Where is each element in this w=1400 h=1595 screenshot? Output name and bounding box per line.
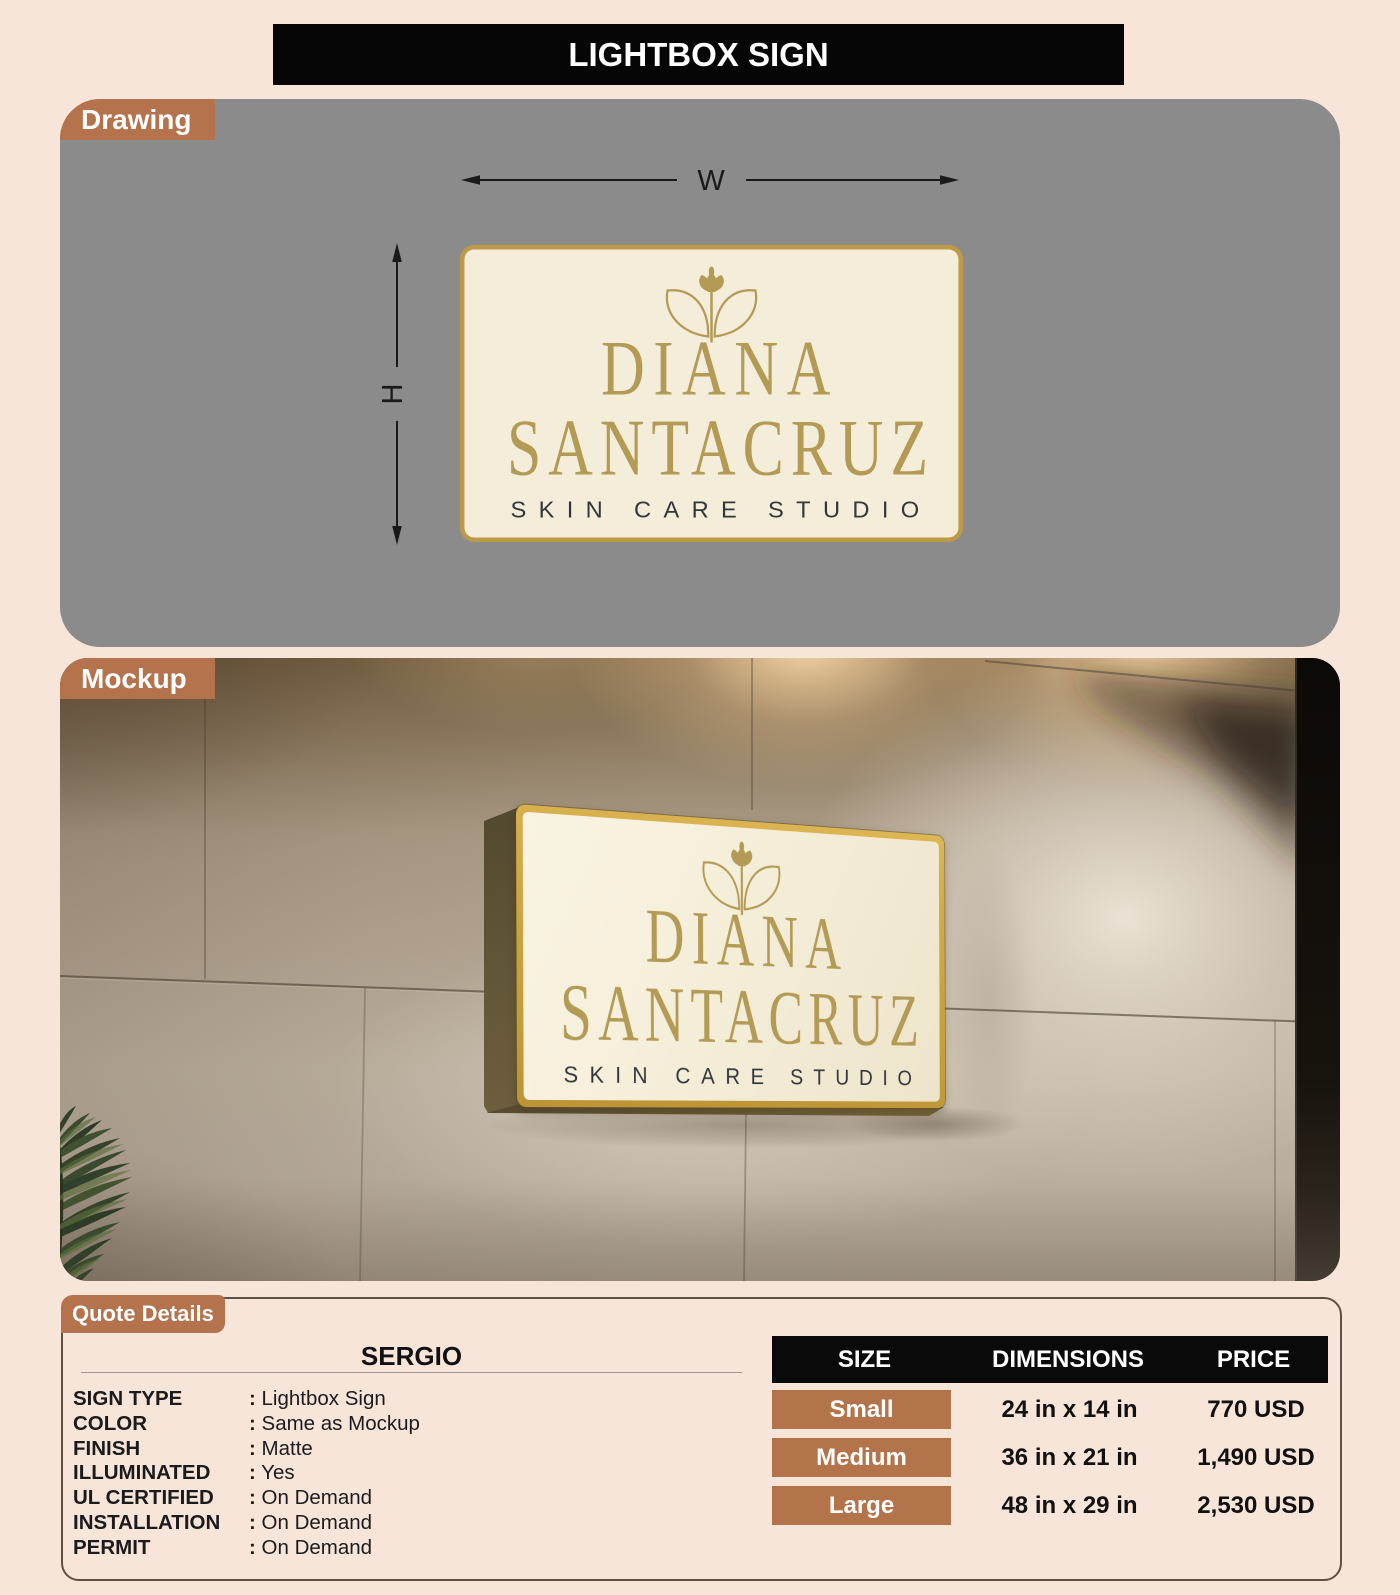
- svg-text:W: W: [697, 165, 725, 197]
- svg-text:H: H: [377, 384, 409, 405]
